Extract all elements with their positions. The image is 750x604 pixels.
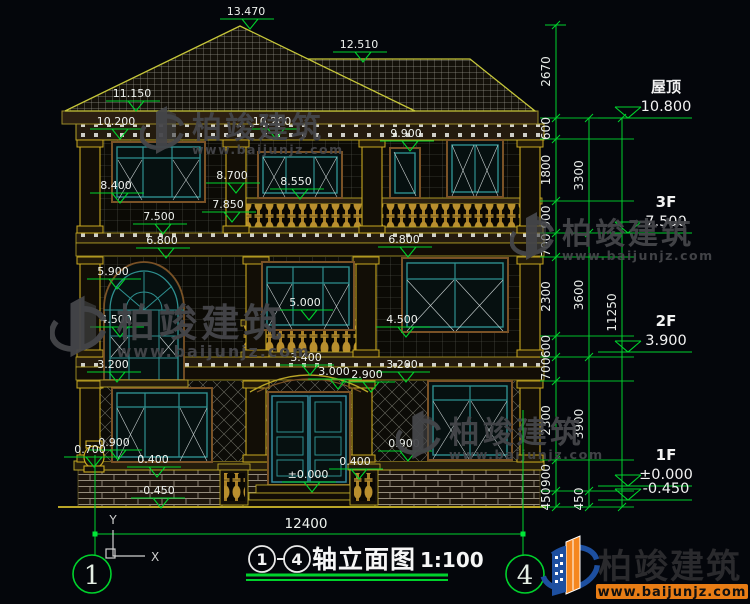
brand-name: 柏竣建筑: [598, 547, 742, 587]
title-axis-start: 1: [256, 550, 267, 569]
svg-text:www.baijunjz.com: www.baijunjz.com: [117, 342, 311, 361]
window: [447, 140, 503, 197]
svg-text:5.000: 5.000: [289, 296, 321, 309]
svg-text:600: 600: [539, 117, 553, 140]
svg-text:柏竣建筑: 柏竣建筑: [192, 111, 324, 146]
svg-text:450: 450: [539, 488, 553, 511]
floor-level-屋顶: 屋顶10.800: [598, 78, 692, 118]
svg-text:0.700: 0.700: [74, 443, 106, 456]
pilaster: [349, 381, 375, 462]
svg-text:1800: 1800: [539, 155, 553, 186]
svg-text:8.700: 8.700: [216, 169, 248, 182]
pilaster: [359, 140, 385, 233]
svg-text:3.200: 3.200: [386, 358, 418, 371]
brand-url: www.baijunjz.com: [598, 585, 747, 600]
svg-text:700: 700: [539, 358, 553, 381]
balcony-rail-3f: [242, 198, 542, 233]
svg-text:6.800: 6.800: [146, 234, 178, 247]
svg-text:10.800: 10.800: [641, 99, 692, 115]
svg-text:3300: 3300: [572, 160, 586, 191]
dim-chain: 11250: [605, 114, 626, 511]
svg-text:2F: 2F: [656, 312, 677, 330]
svg-text:11250: 11250: [605, 293, 619, 331]
title-axis-end: 4: [291, 550, 302, 569]
porch-pedestal-right: [348, 464, 380, 505]
svg-text:7.850: 7.850: [212, 198, 244, 211]
window: [390, 148, 420, 198]
svg-text:8.550: 8.550: [280, 175, 312, 188]
brand-logo: 柏竣建筑 www.baijunjz.com: [537, 536, 748, 600]
svg-text:-0.450: -0.450: [643, 481, 690, 497]
window: [112, 388, 212, 462]
svg-text:3.900: 3.900: [645, 333, 687, 349]
svg-text:2300: 2300: [539, 281, 553, 312]
window: [402, 258, 508, 332]
svg-text:11.150: 11.150: [113, 87, 152, 100]
svg-text:13.470: 13.470: [227, 5, 266, 18]
svg-text:±0.000: ±0.000: [288, 468, 329, 481]
ucs-y-label: Y: [108, 513, 117, 527]
svg-text:3.000: 3.000: [318, 365, 350, 378]
svg-text:8.400: 8.400: [100, 179, 132, 192]
svg-text:0.400: 0.400: [339, 455, 371, 468]
cad-canvas: 13.47012.51011.15010.20010.2009.9008.700…: [0, 0, 750, 604]
svg-text:600: 600: [539, 335, 553, 358]
svg-text:3F: 3F: [656, 193, 677, 211]
svg-text:2670: 2670: [539, 56, 553, 87]
pilaster: [243, 381, 269, 462]
title-scale: 1:100: [420, 548, 484, 572]
svg-text:10.200: 10.200: [97, 115, 136, 128]
overall-width-dim: 12400: [285, 516, 328, 532]
svg-text:屋顶: 屋顶: [651, 78, 681, 96]
svg-text:900: 900: [539, 464, 553, 487]
svg-text:6.800: 6.800: [388, 233, 420, 246]
elevation-drawing-svg: 13.47012.51011.15010.20010.2009.9008.700…: [0, 0, 750, 604]
svg-text:-0.450: -0.450: [139, 484, 174, 497]
svg-text:柏竣建筑: 柏竣建筑: [117, 302, 286, 347]
svg-text:1F: 1F: [656, 446, 677, 464]
floor-level-1F: 1F±0.000: [598, 446, 693, 486]
svg-text:柏竣建筑: 柏竣建筑: [562, 217, 694, 252]
ucs-x-label: X: [151, 550, 159, 564]
pilaster: [353, 257, 379, 357]
porch-pedestal-left: [218, 464, 250, 505]
svg-text:www.baijunjz.com: www.baijunjz.com: [449, 448, 604, 463]
title-name: 轴立面图: [312, 545, 416, 574]
svg-text:www.baijunjz.com: www.baijunjz.com: [192, 142, 344, 157]
axis-bubble-1-label: 1: [84, 561, 101, 591]
svg-text:2.900: 2.900: [351, 368, 383, 381]
svg-text:0.400: 0.400: [137, 453, 169, 466]
svg-text:柏竣建筑: 柏竣建筑: [449, 415, 584, 451]
svg-text:www.baijunjz.com: www.baijunjz.com: [562, 248, 714, 263]
svg-text:5.900: 5.900: [97, 265, 129, 278]
ucs-icon: Y X: [106, 513, 159, 564]
axis-bubble-4-label: 4: [517, 561, 534, 591]
svg-text:450: 450: [572, 488, 586, 511]
pilaster: [77, 140, 103, 233]
svg-text:4.500: 4.500: [386, 313, 418, 326]
svg-text:9.900: 9.900: [390, 127, 422, 140]
svg-text:3600: 3600: [572, 280, 586, 311]
svg-text:12.510: 12.510: [340, 38, 379, 51]
svg-text:7.500: 7.500: [143, 210, 175, 223]
elevation-marker-13.470: 13.470: [220, 5, 274, 29]
drawing-title: 1 4 轴立面图 1:100: [246, 545, 484, 580]
